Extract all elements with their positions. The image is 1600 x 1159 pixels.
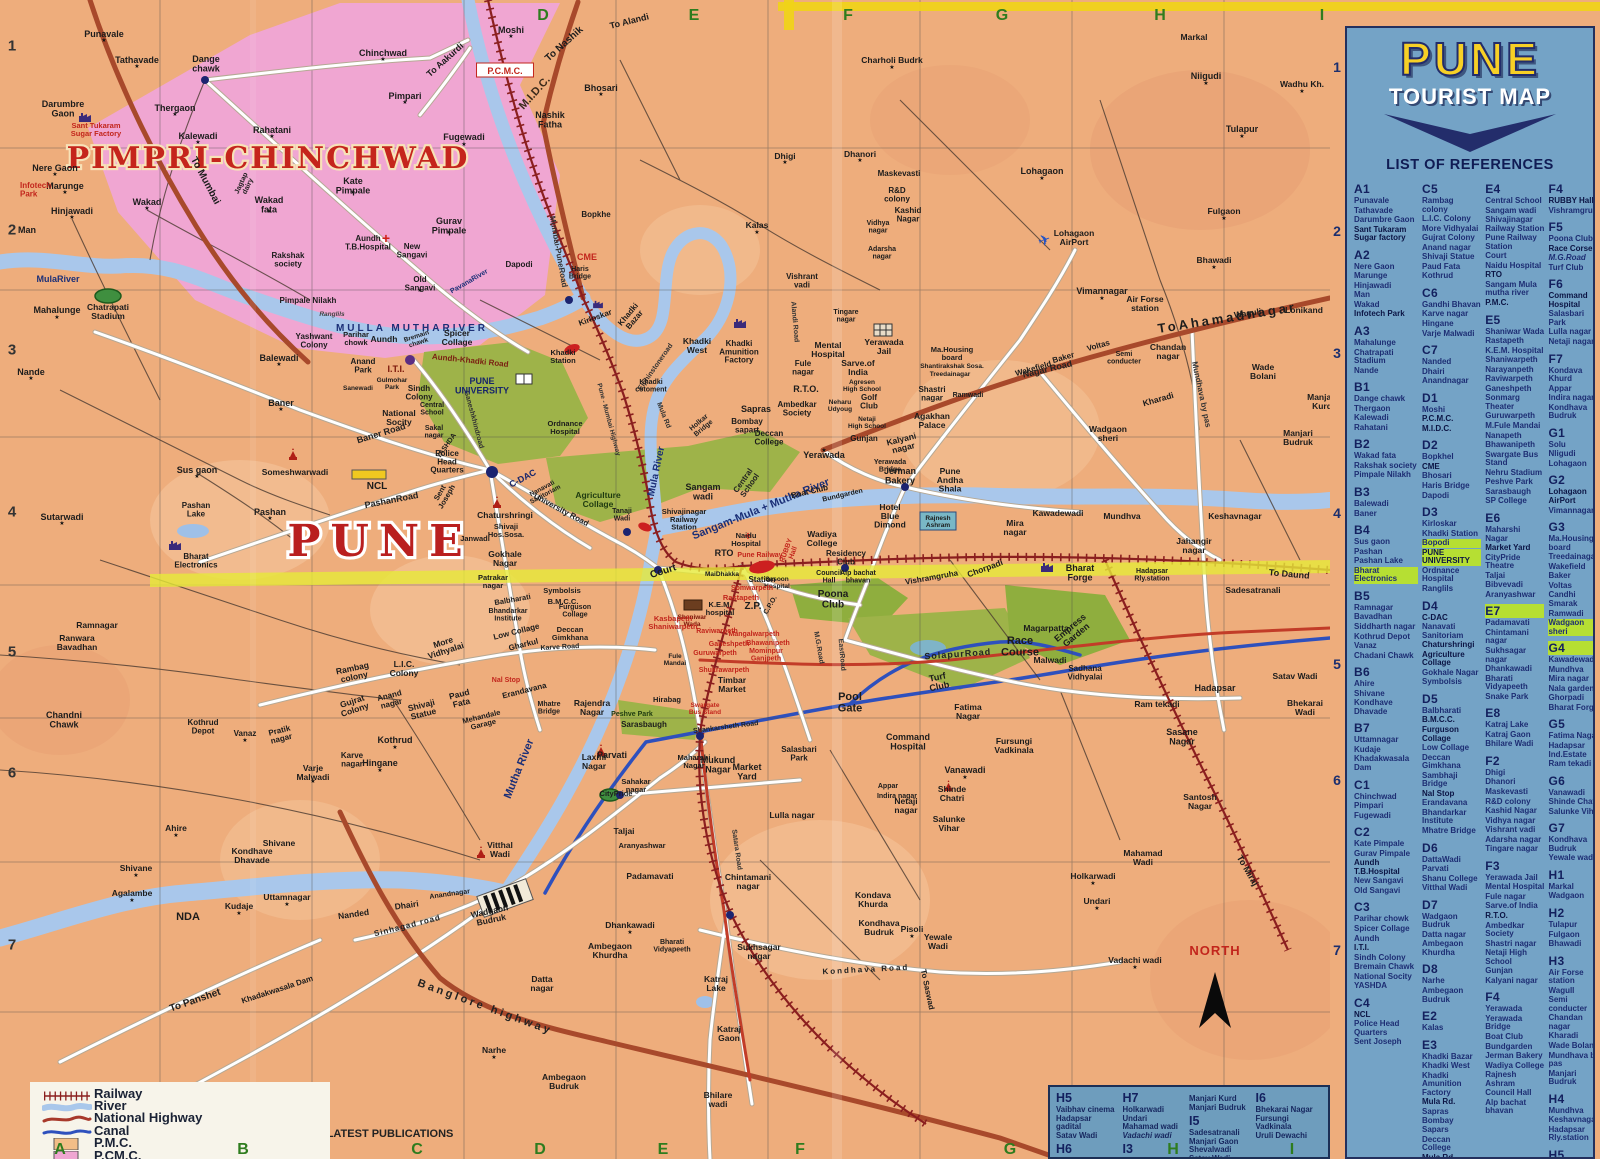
map-label: Miranagar [1003,518,1027,537]
reference-item: Furguson Collage [1422,726,1481,743]
reference-code: F6 [1548,277,1595,291]
map-label: Ahire [165,823,187,833]
reference-code: C6 [1422,286,1481,300]
village-star-icon: ★ [1039,175,1044,182]
map-label: NationalSocity [382,408,416,427]
map-label: LohagaonAirPort [1054,228,1095,247]
map-label: SadhanaVidhyalai [1068,664,1103,681]
map-label: SantoshNagar [1183,792,1217,811]
map-label: KhadkiStation [550,348,576,365]
reference-item: Peshve Park [1485,478,1544,487]
reference-item: Dhigi [1485,769,1544,778]
reference-item: Haris Bridge [1422,482,1481,491]
reference-item: Snake Park [1485,693,1544,702]
reference-item: Anand nagar [1422,244,1481,253]
reference-item: Kondhava Budruk [1548,836,1595,853]
reference-item: Sent Joseph [1354,1038,1418,1047]
reference-item: Wadgaon sheri [1548,619,1595,636]
map-label: R.T.O. [793,384,819,394]
reference-item: Ramnagar [1354,604,1418,613]
reference-item: Aundh [1354,935,1418,944]
legend-item: National Highway [42,1112,322,1124]
reference-item: Chandan nagar [1548,1014,1595,1031]
map-label: VitthalWadi [487,840,513,859]
map-subtitle: TOURIST MAP [1347,84,1593,110]
map-label: Gunjan [850,434,878,443]
reference-item: Rahatani [1354,424,1418,433]
reference-item: Tathavade [1354,207,1418,216]
village-star-icon: ★ [54,314,59,321]
map-label: Aranyashwar [618,841,665,850]
references-list: A1PunavaleTathavadeDarumbre GaonSant Tuk… [1347,173,1593,1159]
map-label: FursungiVadkinala [994,736,1033,755]
map-label: Rastapeth [723,593,760,602]
village-star-icon: ★ [1211,264,1216,271]
reference-code: G2 [1548,473,1595,487]
reference-item: Voltas [1548,582,1595,591]
reference-item: Hadapsar Ind.Estate [1548,742,1595,759]
map-label: Janwadi [460,534,490,543]
map-label: Kothrud [378,735,413,745]
map-label: Somwarpeth [731,585,773,592]
map-label: Dattanagar [530,974,554,993]
map-label: Kudaje [225,901,254,911]
map-label: Kalas [746,220,769,230]
map-label: Taljai [613,826,634,836]
map-label: Vidhyanagar [867,220,890,234]
reference-item: Man [1354,291,1418,300]
reference-item: Sant Tukaram Sugar factory [1354,226,1418,243]
map-label: Peshve Park [611,711,653,718]
reference-item: Mula Rd. [1422,1098,1481,1107]
katraj-lake [696,996,714,1008]
reference-code: H6 [1056,1142,1119,1156]
reference-item: Bharati Vidyapeeth [1485,675,1544,692]
reference-item: Nehru Stadium [1485,469,1544,478]
reference-item: Bopodi [1422,539,1481,548]
map-label: Charholi Budrk [861,55,923,65]
reference-code: H7 [1123,1091,1186,1105]
map-label: Ramwadi [953,392,984,399]
reference-item: Treedainagar [1548,553,1595,562]
map-label: ShindeChatri [938,784,967,803]
map-label: Uttamnagar [263,892,311,902]
reference-item: Indira nagar [1548,394,1595,403]
reference-code: G7 [1548,821,1595,835]
map-label: ©LATEST PUBLICATIONS [319,1128,454,1140]
reference-item: Solu [1548,441,1595,450]
map-label: KatrajLake [704,974,728,993]
map-label: Air Forsestation [1126,294,1164,313]
map-label: Pashan [254,507,286,517]
reference-item: Sapras [1422,1108,1481,1117]
reference-item: Chintamani nagar [1485,629,1544,646]
reference-item: Bavadhan [1354,613,1418,622]
reference-item: Katraj Lake [1485,721,1544,730]
reference-item: Shivaji Statue [1422,253,1481,262]
map-label: TimbarMarket [718,675,747,694]
reference-item: Vidhya nagar [1485,817,1544,826]
legend-item: Canal [42,1124,322,1136]
reference-item: Bhawanipeth [1485,441,1544,450]
map-label: Wadhu Kh. [1280,79,1324,89]
reference-item: PUNE UNIVERSITY [1422,549,1481,566]
reference-item: Air Forse station [1548,969,1595,986]
reference-item: Bombay Sapars [1422,1117,1481,1134]
reference-item: Karve nagar [1422,310,1481,319]
reference-item: Mundhva [1548,1107,1595,1116]
reference-item: Boat Club [1485,1033,1544,1042]
map-label: KothrudDepot [187,718,218,735]
reference-item: Rastapeth [1485,337,1544,346]
reference-item: Command Hospital [1548,292,1595,309]
grid-number-right: 1 [1333,60,1341,74]
river-legend-icon [42,1100,94,1111]
map-label: Balewadi [259,353,298,363]
village-star-icon: ★ [1132,964,1137,971]
map-label: NORTH [1189,943,1240,958]
map-label: Kalewadi [178,131,217,141]
reference-code: A1 [1354,182,1418,196]
reference-item: Pashan [1354,548,1418,557]
reference-item: Mhatre Bridge [1422,827,1481,836]
reference-code: E5 [1485,313,1544,327]
map-label: Z.P. [744,601,761,612]
reference-item: Sindh Colony [1354,954,1418,963]
reference-item: Baner [1354,510,1418,519]
reference-item: Markal [1548,883,1595,892]
reference-item: More Vidhyalai [1422,225,1481,234]
map-label: KondhaveDhavade [231,846,272,865]
reference-code: H3 [1548,954,1595,968]
village-star-icon: ★ [284,901,289,908]
reference-code: C5 [1422,182,1481,196]
reference-item: Kothrud [1422,272,1481,281]
reference-code: H5 [1056,1091,1119,1105]
map-label: Malwadi [1033,655,1066,665]
reference-item: Yerawada [1485,1005,1544,1014]
map-label: MaiDhakka [705,571,739,578]
reference-item: Pashan Lake [1354,557,1418,566]
reference-code: E2 [1422,1009,1481,1023]
map-label: Vadachi wadi [1108,955,1161,965]
map-label: Pariharchowk [343,330,369,347]
reference-item: Varje Malwadi [1422,330,1481,339]
reference-item: Rakshak society [1354,462,1418,471]
reference-item: Narayanpeth [1485,366,1544,375]
reference-code: C7 [1422,343,1481,357]
reference-item: Vanawadi [1548,789,1595,798]
map-label: Mangalwarpeth [729,631,780,638]
reference-code: H4 [1548,1092,1595,1106]
reference-code: F4 [1548,182,1595,196]
reference-item: Keshavnagar [1548,1116,1595,1125]
reference-code: E8 [1485,706,1544,720]
map-label: AgakhanPalace [914,411,950,430]
reference-item: R&D colony [1485,798,1544,807]
reference-item: Fulgaon [1548,931,1595,940]
reference-item: Taljai [1485,572,1544,581]
reference-item: Kondava Khurd [1548,367,1595,384]
legend-item: P.M.C. [42,1137,322,1149]
reference-item: Khadki West [1422,1062,1481,1071]
map-label: Sadesatranali [1225,585,1280,595]
junction-dot [565,296,573,304]
reference-code: B7 [1354,721,1418,735]
map-label: Yerawada [803,450,846,460]
reference-code: D8 [1422,962,1481,976]
reference-item: Yerawada Bridge [1485,1015,1544,1032]
reference-item: SP College [1485,497,1544,506]
reference-item: Shinde Chatri [1548,798,1595,807]
map-label: Hirabag [653,695,681,704]
village-star-icon: ★ [627,929,632,936]
reference-item: Dapodi [1422,492,1481,501]
reference-item: YASHDA [1354,982,1418,991]
reference-item: Nal Stop [1422,790,1481,799]
map-label: Sus gaon [177,465,218,475]
map-label: ChandniChawk [46,710,82,729]
reference-code: F3 [1485,859,1544,873]
map-label: MhatreBridge [538,701,561,715]
map-label: Dapodi [505,260,532,269]
map-label: Niigudi [1191,71,1222,81]
map-label: Guruwarpeth [693,650,737,657]
reference-item: Semi conducter [1548,996,1595,1013]
map-label: Chaturshringi [477,510,533,520]
reference-item: Adarsha nagar [1485,836,1544,845]
reference-item: Sukhsagar nagar [1485,647,1544,664]
junction-dot [405,355,415,365]
reference-item: P.M.C. [1485,299,1544,308]
reference-item: Sarve.of India [1485,902,1544,911]
reference-item: R.T.O. [1485,912,1544,921]
reference-item: Dhanori [1485,778,1544,787]
map-label: HadapsarRly.station [1134,568,1169,582]
reference-item: Bremain Chawk [1354,963,1418,972]
reference-item: Anandnagar [1422,377,1481,386]
map-label: Fugewadi [443,132,485,142]
reference-item: Kothrud Depot [1354,633,1418,642]
map-label: KatrajGaon [717,1024,741,1043]
map-label: NCL [367,481,388,492]
reference-item: RUBBY Hall [1548,197,1595,206]
reference-column: F4RUBBY HallVishramgruhaF5Poona ClubRace… [1548,177,1595,1159]
reference-item: CityPride Theatre [1485,554,1544,571]
reference-item: Khadki Bazar [1422,1053,1481,1062]
reference-item: I.T.I. [1354,944,1418,953]
reference-item: Maharshi Nagar [1485,526,1544,543]
reference-item: Swargate Bus Stand [1485,451,1544,468]
reference-code: I3 [1123,1142,1186,1156]
map-label: Lonikand [1285,305,1323,315]
reference-item: Khadki Station [1422,530,1481,539]
village-star-icon: ★ [889,64,894,71]
reference-item: Siddharth nagar [1354,623,1418,632]
reference-item: Kharadi [1548,1032,1595,1041]
reference-item: Parihar chowk [1354,915,1418,924]
reference-code: B5 [1354,589,1418,603]
reference-item: Jerman Bakery [1485,1052,1544,1061]
reference-code: B4 [1354,523,1418,537]
sidebar-panel: PUNE TOURIST MAP LIST OF REFERENCES A1Pu… [1345,26,1595,1159]
map-label: DeccanCollege [755,429,784,446]
map-label: Dhigi [774,151,795,161]
reference-item: Moshi [1422,406,1481,415]
reference-item: Punavale [1354,197,1418,206]
reference-code: C2 [1354,825,1418,839]
reference-item: Fule nagar [1485,893,1544,902]
reference-item: Ramwadi [1548,610,1595,619]
map-label: Magarpatta [1023,623,1069,633]
map-canvas: + + ✈ ★★★★★★★★★★★★★★★★★★★★★★★★★★★★★★★★★★… [0,0,1330,1159]
reference-item: Gandhi Bhavan [1422,301,1481,310]
map-label: PoolGate [838,691,862,714]
map-label: Keshavnagar [1208,511,1262,521]
map-label: Tingarenagar [833,309,858,323]
village-star-icon: ★ [1099,295,1104,302]
map-label: AmbegaonKhurdha [588,941,632,960]
reference-item: Lohagaon AirPort [1548,488,1595,505]
canal-legend-icon [42,1125,94,1136]
map-label: GuravPimpale [432,216,467,235]
reference-column: H5Vaibhav cinemaHadapsar gaditalSatav Wa… [1056,1089,1123,1155]
reference-item: Marunge [1354,272,1418,281]
reference-item: Central School [1485,197,1544,206]
railway-legend-icon [42,1088,94,1099]
reference-item: Parvati [1422,865,1481,874]
reference-item: Chadani Chawk [1354,652,1418,661]
map-label: NashikFatha [535,110,566,129]
reference-item: Mira nagar [1548,675,1595,684]
map-label: Nande [17,367,45,377]
reference-item: Aranyashwar [1485,591,1544,600]
map-label: YashwantColony [296,332,333,349]
reference-item: Satav Wadi [1189,1155,1252,1159]
reference-item: Council Hall [1485,1089,1544,1098]
reference-item: Shanu College [1422,875,1481,884]
reference-item: Hadapsar Rly.station [1548,1126,1595,1143]
reference-code: B6 [1354,665,1418,679]
map-label: Kawadewadi [1032,508,1083,518]
reference-item: Uttamnagar [1354,736,1418,745]
map-label: PuneAndhaShala [937,466,964,494]
reference-item: Mundhava by pas [1548,1052,1595,1069]
legend-item: P.CM.C. [42,1149,322,1159]
reference-item: Darumbre Gaon [1354,216,1418,225]
map-label: ChatrapatiStadium [87,302,129,321]
map-label: Dangechawk [192,54,221,73]
reference-item: Sambhaji Bridge [1422,772,1481,789]
reference-item: Rambag colony [1422,197,1481,214]
map-label: Baner [268,398,294,408]
reference-code: H1 [1548,868,1595,882]
reference-item: RTO [1485,271,1544,280]
reference-item: Ram tekadi [1548,760,1595,769]
top-highlight-band [778,2,1330,11]
reference-code: D3 [1422,505,1481,519]
map-label: Aundh [371,334,398,344]
map-label: CommandHospital [886,732,930,751]
reference-item: Balbharati [1422,707,1481,716]
reference-item: Nande [1354,367,1418,376]
reference-item: Padamavati [1485,619,1544,628]
reference-item: Satav Wadi [1056,1132,1119,1141]
reference-code: E6 [1485,511,1544,525]
reference-item: Pimpari [1354,802,1418,811]
village-star-icon: ★ [962,774,967,781]
reference-item: Salunke Vihar [1548,808,1595,817]
map-label: Bopkhe [581,210,611,219]
map-label: FatimaNagar [954,702,982,721]
reference-item: B.M.C.C. [1422,716,1481,725]
pcmc-legend-icon [42,1150,94,1159]
village-star-icon: ★ [173,832,178,839]
reference-item: Sarasbaugh [1485,488,1544,497]
reference-item: Khadakwasala Dam [1354,755,1418,772]
reference-code: E3 [1422,1038,1481,1052]
map-label: CentralSchool [420,402,444,416]
map-label: ManjariBudruk [1283,428,1313,447]
pune-tourist-map-page: + + ✈ ★★★★★★★★★★★★★★★★★★★★★★★★★★★★★★★★★★… [0,0,1600,1159]
map-label: Sant TukaramSugar Factory [71,121,122,138]
reference-item: Shastri nagar [1485,940,1544,949]
map-label: PoonaClub [818,589,849,610]
reference-item: Kondhava Budruk [1548,404,1595,421]
reference-item: Bhawadi [1548,940,1595,949]
reference-item: M.Fule Mandai [1485,422,1544,431]
map-label: Bhawadi [1197,255,1232,265]
reference-item: Mula Rd. [1422,1154,1481,1159]
junction-dot [726,911,734,919]
reference-item: Yewale wadi [1548,854,1595,863]
map-label: RajneshAshram [925,515,950,529]
reference-code: I5 [1189,1114,1252,1128]
reference-code: G3 [1548,520,1595,534]
reference-item: Ordnance Hospital [1422,567,1481,584]
reference-item: Bharat Electronics [1354,567,1418,584]
grid-number-right: 5 [1333,657,1341,671]
reference-item: Kirloskar [1422,520,1481,529]
sidebar-header: PUNE TOURIST MAP LIST OF REFERENCES [1347,28,1593,173]
map-label: Rahatani [253,125,291,135]
map-label: Rakshaksociety [272,251,305,268]
map-label: Narhe [482,1045,506,1055]
village-star-icon: ★ [377,767,382,774]
reference-item: Ambegaon Khurdha [1422,940,1481,957]
map-label: Hadapsar [1194,683,1236,693]
village-star-icon: ★ [242,737,247,744]
reference-code: C4 [1354,996,1418,1010]
reference-item: Vitthal Wadi [1422,884,1481,893]
map-label: Pune Railway [737,552,782,559]
reference-code: G5 [1548,717,1595,731]
map-label: P.C.M.C. [487,66,522,76]
reference-item: Uruli Dewachi [1256,1132,1319,1141]
reference-item: Poona Club [1548,235,1595,244]
map-label: KondavaKhurda [855,890,891,909]
reference-item: M.I.D.C. [1422,425,1481,434]
village-star-icon: ★ [236,910,241,917]
reference-item: Kate Pimpale [1354,840,1418,849]
reference-code: C3 [1354,900,1418,914]
list-of-references-title: LIST OF REFERENCES [1347,157,1593,173]
map-label: Lohagaon [1021,166,1064,176]
map-label: Mahalunge [33,305,80,315]
reference-item: Kawadewadi [1548,656,1595,665]
map-label: Fulgaon [1207,206,1240,216]
reference-item: Ganeshpeth [1485,385,1544,394]
